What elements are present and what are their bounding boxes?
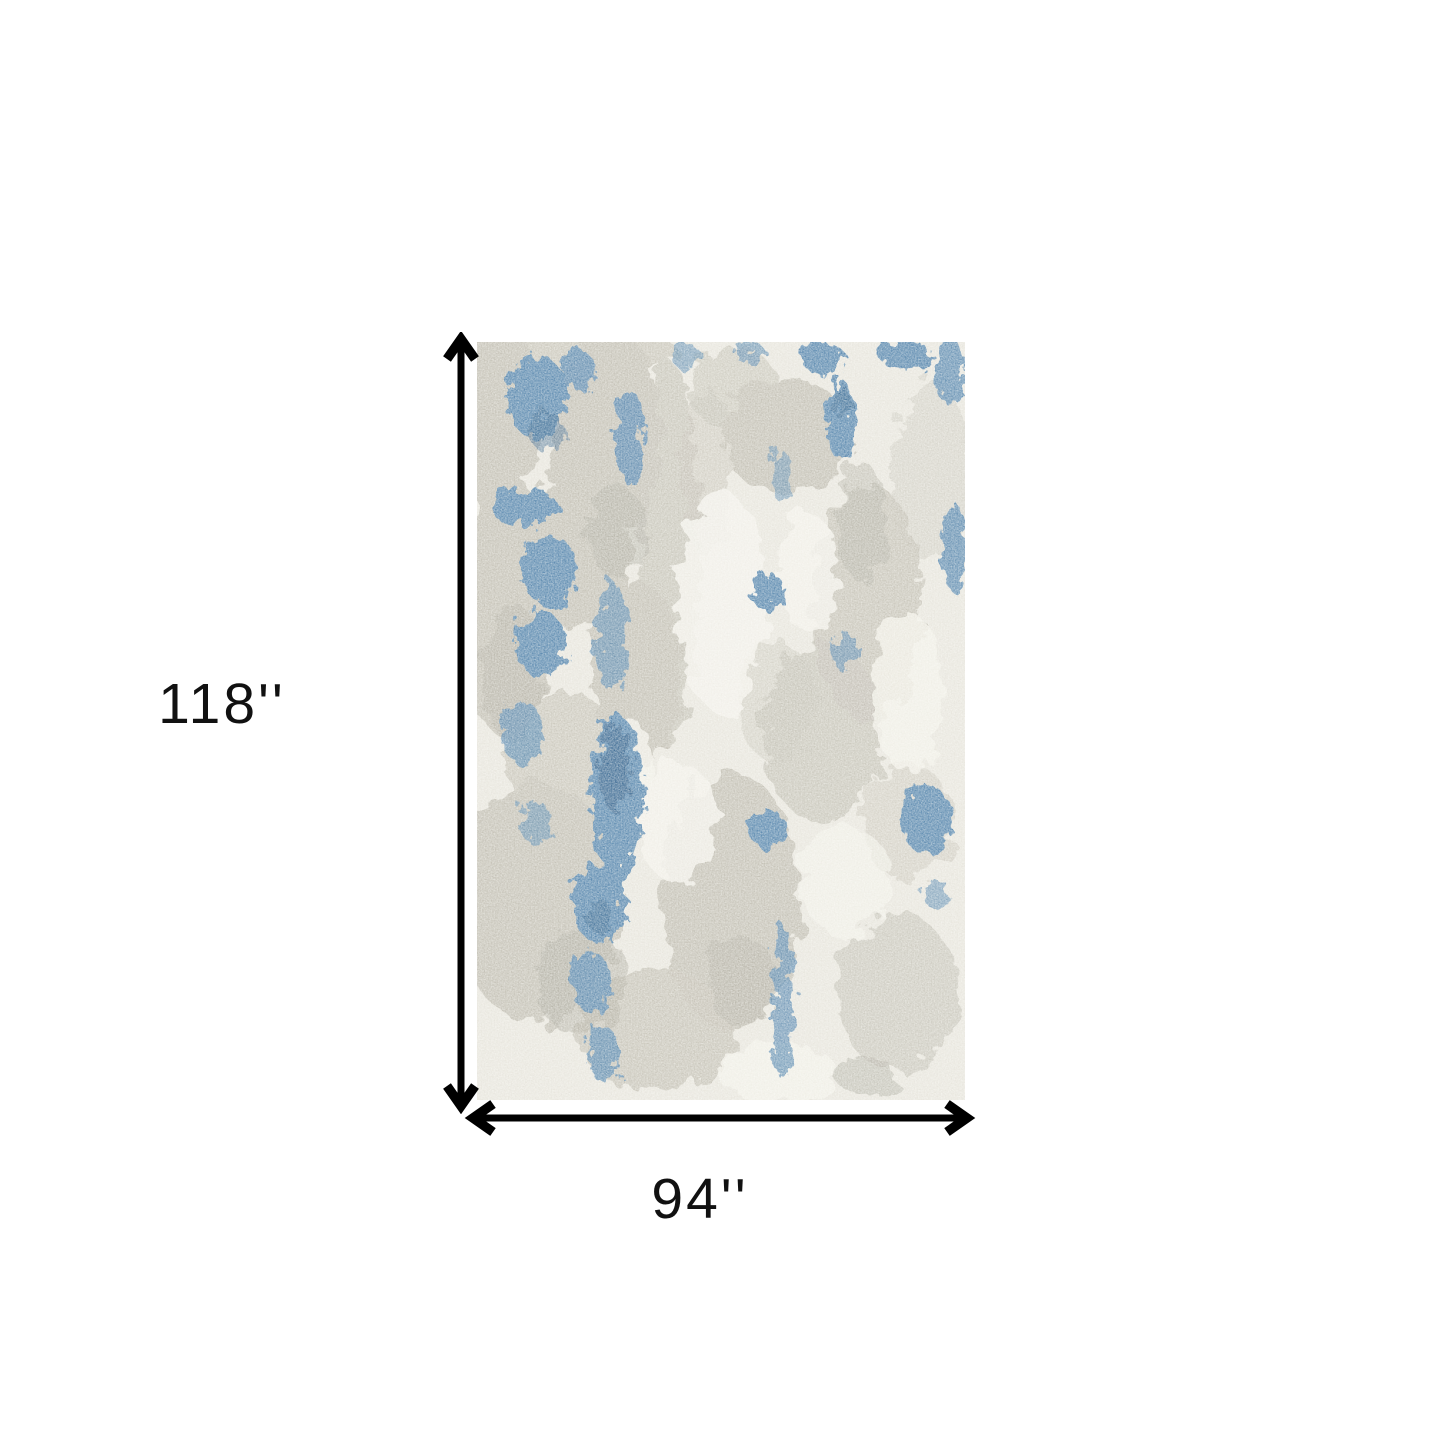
rug-image: [477, 342, 965, 1100]
height-dimension-arrow: [441, 332, 481, 1114]
height-dimension-label: 118'': [112, 668, 332, 740]
width-dimension-arrow: [464, 1098, 976, 1138]
dimension-diagram: 118'' 94'': [0, 0, 1445, 1445]
rug-art: [477, 342, 965, 1100]
rug-weave-texture: [477, 342, 965, 1100]
width-dimension-label: 94'': [590, 1163, 810, 1235]
